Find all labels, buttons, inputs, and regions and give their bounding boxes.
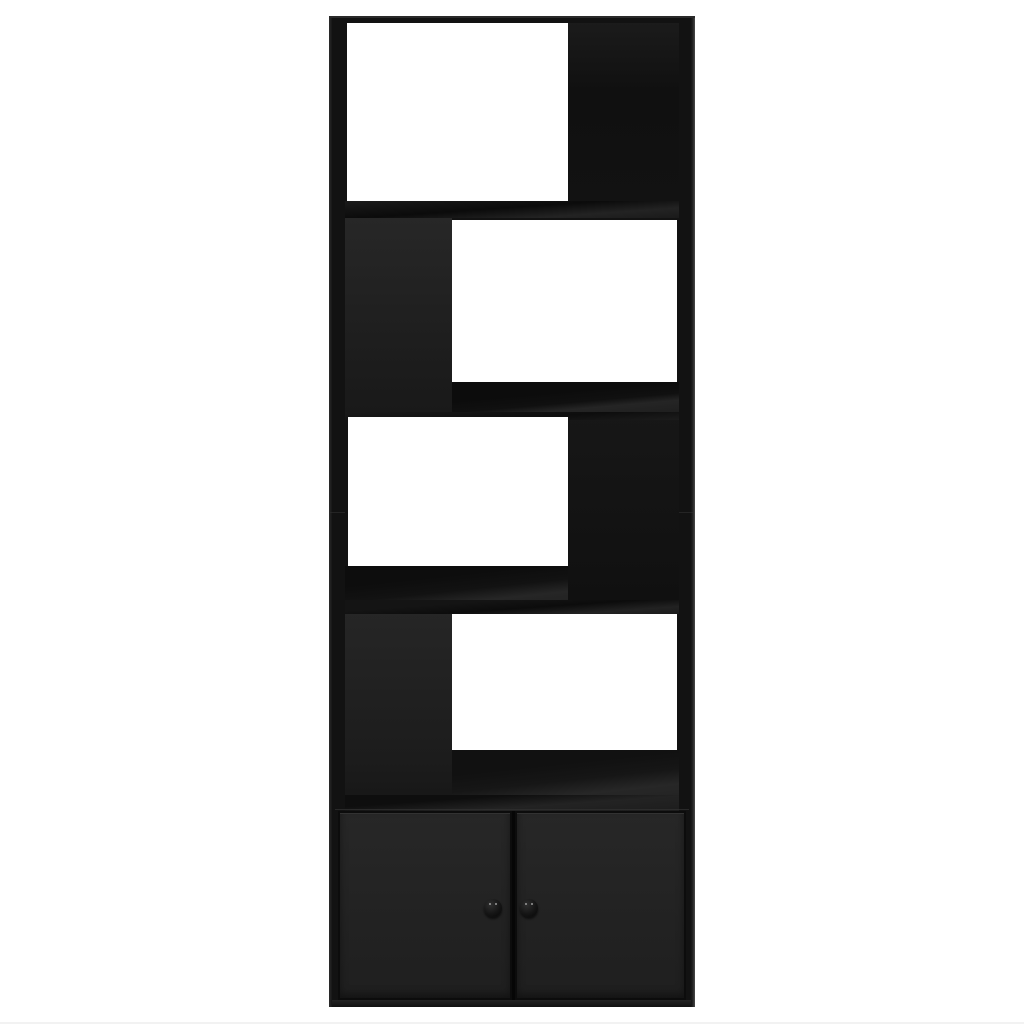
compartment-3-back-panel bbox=[568, 413, 679, 602]
door-knob-right bbox=[520, 899, 538, 917]
cabinet-door-gap bbox=[512, 811, 515, 1000]
right-panel-seam bbox=[679, 512, 694, 513]
knob-highlight-dot bbox=[531, 903, 533, 905]
knob-highlight-dot bbox=[525, 903, 527, 905]
compartment-2-opening bbox=[452, 220, 677, 382]
knob-highlight-dot bbox=[495, 903, 497, 905]
compartment-1-back-panel bbox=[568, 23, 679, 218]
shelf-3-surface bbox=[345, 600, 679, 614]
cabinet-top-edge-highlight bbox=[335, 809, 689, 810]
bookcase-room-divider bbox=[329, 16, 695, 1007]
compartment-3-opening bbox=[348, 417, 568, 566]
compartment-1-opening bbox=[347, 23, 568, 201]
compartment-4-opening bbox=[452, 614, 677, 750]
door-knob-left bbox=[484, 899, 502, 917]
cabinet-bottom-rail bbox=[329, 1000, 695, 1007]
product-photo-canvas bbox=[0, 0, 1024, 1024]
shelf-1-surface bbox=[345, 201, 679, 218]
compartment-2-side-panel bbox=[345, 218, 452, 413]
knob-highlight-dot bbox=[489, 903, 491, 905]
left-panel-seam bbox=[330, 512, 345, 513]
compartment-4-side-panel bbox=[345, 608, 452, 811]
top-outer-edge-highlight bbox=[329, 16, 695, 18]
cabinet-door-right bbox=[515, 811, 686, 1000]
